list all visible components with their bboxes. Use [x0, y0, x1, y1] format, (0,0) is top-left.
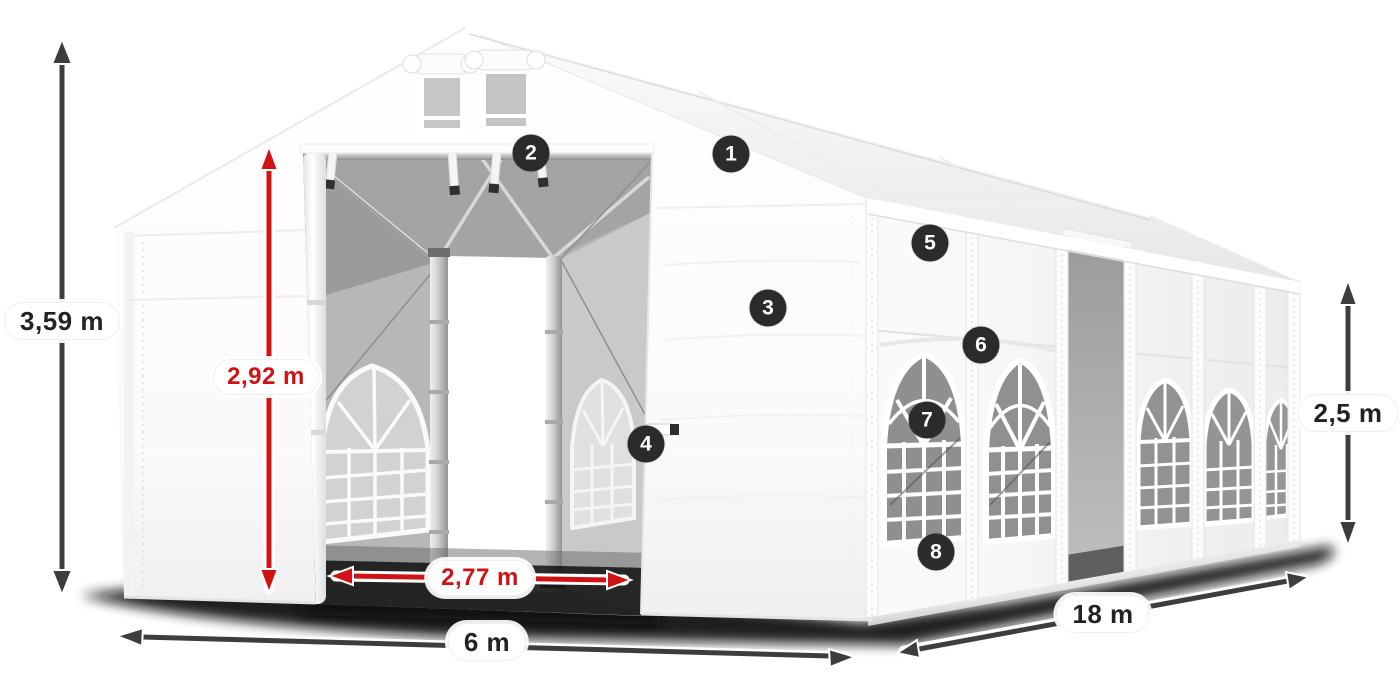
callout-badge-8: 8 — [918, 534, 955, 571]
callout-badge-1: 1 — [713, 136, 750, 173]
door-opening-interior — [300, 148, 656, 618]
side-window-2 — [986, 360, 1054, 542]
tent-dimension-diagram: 3,59 m 2,92 m 2,77 m 6 m 18 m 2,5 m 1 2 … — [0, 0, 1400, 700]
callout-badge-6: 6 — [963, 327, 1000, 364]
callout-badge-5: 5 — [912, 225, 949, 262]
front-left-corner-pole — [124, 232, 134, 598]
callout-badge-4: 4 — [628, 426, 665, 463]
door-height-label: 2,92 m — [213, 359, 319, 395]
length-label: 18 m — [1056, 595, 1149, 633]
opening-top-fascia — [300, 144, 654, 153]
door-width-label: 2,77 m — [427, 560, 533, 596]
callout-badge-3: 3 — [750, 290, 787, 327]
side-window-3 — [1138, 380, 1192, 528]
total-height-label: 3,59 m — [4, 302, 120, 340]
side-height-label: 2,5 m — [1298, 394, 1399, 432]
interior-right-window — [572, 380, 634, 528]
tent-illustration — [0, 0, 1400, 700]
callout-badge-7: 7 — [909, 402, 946, 439]
side-window-1 — [884, 354, 964, 544]
side-window-4 — [1204, 390, 1254, 524]
callout-badge-2: 2 — [513, 135, 550, 172]
base-width-label: 6 m — [448, 623, 526, 661]
